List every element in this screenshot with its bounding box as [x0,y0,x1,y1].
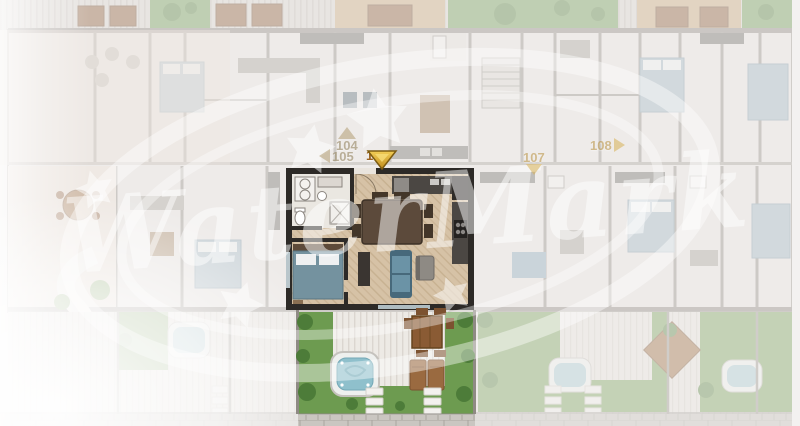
outdoor-table [368,5,412,26]
unit-marker-107-label: 107 [523,151,545,164]
unit-marker-106[interactable]: 106 [366,149,388,162]
bedroom [292,238,348,306]
unit-marker-104[interactable]: 104 [336,124,358,152]
dining-table [362,200,422,244]
unit-106-terrace [296,308,476,426]
bottom-left-fade [0,200,310,426]
arrow-down-icon [526,164,542,178]
arrow-down-icon [366,149,398,171]
arrow-right-icon [614,138,628,152]
floorplan-viewer: WaterMark 104 105 106 107 108 [0,0,800,426]
tv-unit [358,252,370,286]
toilet [295,211,305,225]
fridge [452,176,468,200]
unit-106-plan[interactable] [286,168,474,310]
unit-marker-108[interactable]: 108 [590,138,628,152]
terrace-table [412,316,442,348]
arrow-up-icon [338,124,356,139]
staircase [482,58,520,108]
walkway-bright [298,415,475,426]
unit-marker-105[interactable]: 105 [316,149,354,163]
stove [454,220,467,238]
unit-marker-105-label: 105 [332,150,354,163]
arrow-left-icon [316,149,330,163]
sink [318,192,327,201]
top-terraces [0,0,800,30]
unit-marker-107[interactable]: 107 [523,151,545,178]
bathroom [292,174,354,230]
building-floorplan [0,0,800,426]
window [286,252,290,288]
dining-area [352,192,433,244]
unit-marker-108-label: 108 [590,139,612,152]
